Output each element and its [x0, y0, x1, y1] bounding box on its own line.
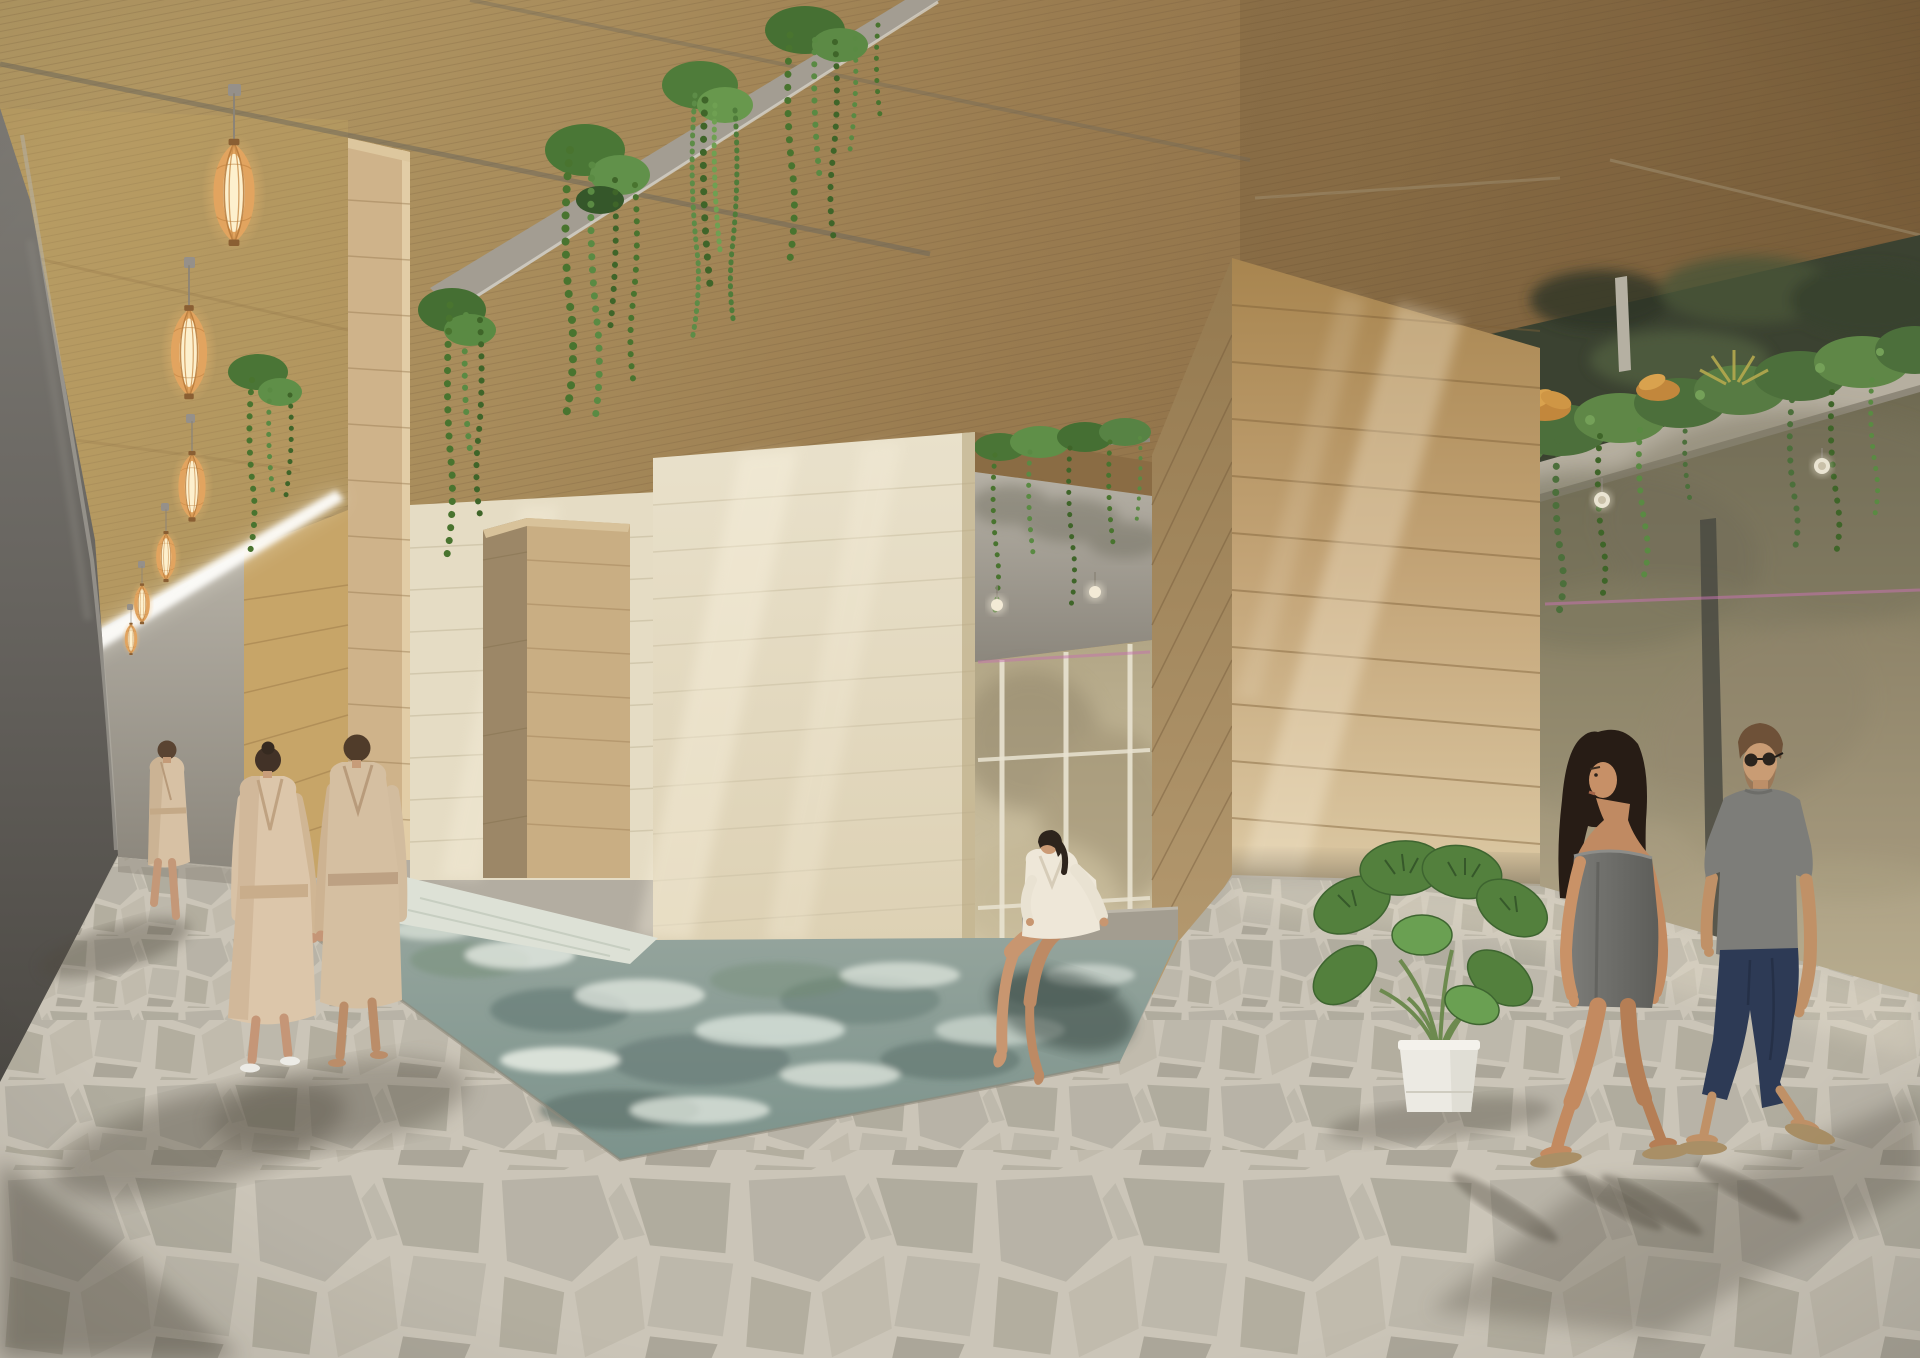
- spa-scene: [0, 0, 1920, 1358]
- scene-canvas: [0, 0, 1920, 1358]
- vignette: [0, 0, 1920, 1358]
